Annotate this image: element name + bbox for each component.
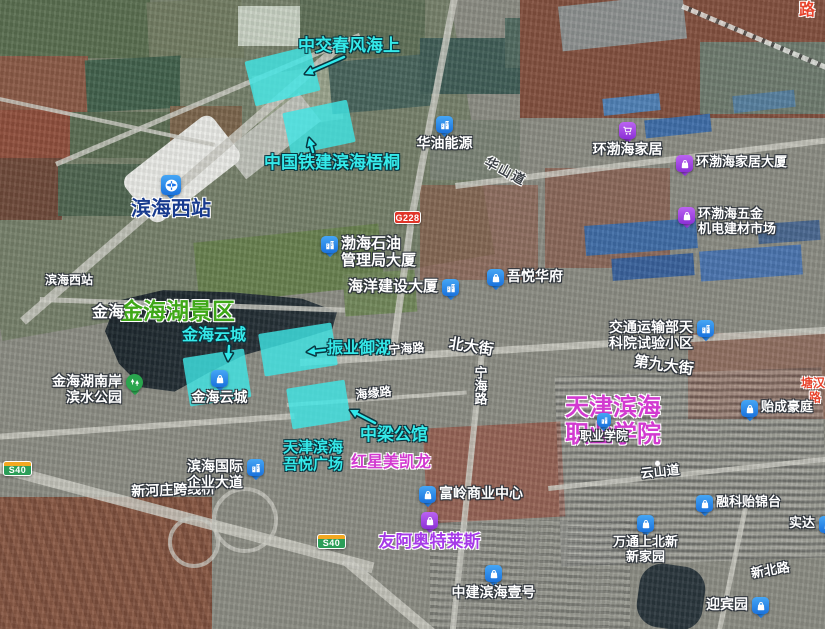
bag-icon[interactable] xyxy=(752,597,769,614)
poi-huanbohai-jiaju-label[interactable]: 环渤海家居 xyxy=(593,142,663,158)
label-line: 海洋建设大厦 xyxy=(348,279,438,296)
route-shield-shield-g228: G228 xyxy=(394,211,421,224)
label-line: 天津滨海 xyxy=(565,395,661,422)
road-label-bei-dajie: 北大街 xyxy=(447,336,494,360)
poi-huayou-nengyuan-label[interactable]: 华油能源 xyxy=(417,136,473,152)
satellite-map[interactable]: 华油能源渤海石油管理局大厦海洋建设大厦吾悦华府交通运输部天科院试验小区环渤海家居… xyxy=(0,0,825,629)
label-line: 环渤海五金 xyxy=(698,207,776,222)
label-line: 天津滨海 xyxy=(283,440,343,457)
route-shield-text: G228 xyxy=(395,213,419,223)
bag-icon[interactable] xyxy=(419,486,436,503)
label-line: 中建滨海壹号 xyxy=(452,585,536,601)
poi-yicheng-haoting-label[interactable]: 贻成豪庭 xyxy=(761,400,813,415)
building-icon[interactable] xyxy=(442,279,459,296)
road-label-binhaixi-zhan-small: 滨海西站 xyxy=(45,274,93,287)
poi-jinhai-yuncheng-poi-label[interactable]: 金海云城 xyxy=(192,390,248,406)
bag-icon[interactable] xyxy=(485,565,502,582)
area-label-wuyue-plaza: 天津滨海吾悦广场 xyxy=(283,440,343,474)
label-line: 交通运输部天 xyxy=(609,320,693,336)
area-label-jinhaihu-scenic-area: 金海湖景区 xyxy=(120,299,235,325)
label-line: 金海湖南岸 xyxy=(52,374,122,390)
label-line: 企业大道 xyxy=(187,475,243,491)
road-label-lu-top-right: 路 xyxy=(799,2,815,20)
label-line: 吾悦华府 xyxy=(507,269,563,285)
bag-icon[interactable] xyxy=(819,516,825,533)
railway-station-icon[interactable] xyxy=(161,175,181,195)
poi-huanbohai-jiaju-dasha-label[interactable]: 环渤海家居大厦 xyxy=(696,155,787,170)
road-label-huashan-dao: 华山道 xyxy=(482,155,529,189)
poi-tiankeyuan-shiyan-xiaoqu-label[interactable]: 交通运输部天科院试验小区 xyxy=(609,320,693,351)
label-line: 华油能源 xyxy=(417,136,473,152)
bag-icon[interactable] xyxy=(211,370,228,387)
label-line: 实达 xyxy=(789,516,815,531)
poi-fuling-shangye-zhongxin-label[interactable]: 富岭商业中心 xyxy=(439,486,523,502)
poi-huanbohai-wujin-shichang-label[interactable]: 环渤海五金机电建材市场 xyxy=(698,207,776,236)
annotation-ann-chunfeng: 中交春风海上 xyxy=(298,36,400,55)
poi-jinhaihu-nanan-park-label[interactable]: 金海湖南岸滨水公园 xyxy=(52,374,122,405)
route-shield-shield-s40-left: S40 xyxy=(3,461,32,476)
road-label-haiyuan-lu: 海缘路 xyxy=(355,385,392,402)
annotation-ann-yuncheng: 金海云城 xyxy=(182,327,246,345)
poi-rongke-yijintai-label[interactable]: 融科贻锦台 xyxy=(716,495,781,510)
bag-icon[interactable] xyxy=(741,400,758,417)
label-line: 职业学院 xyxy=(580,430,628,443)
map-labels: 华油能源渤海石油管理局大厦海洋建设大厦吾悦华府交通运输部天科院试验小区环渤海家居… xyxy=(0,0,825,629)
label-line: 贻成豪庭 xyxy=(761,400,813,415)
poi-wantong-shangbeixin-label[interactable]: 万通上北新新家园 xyxy=(613,535,678,564)
poi-youa-outlets-label[interactable]: 友阿奥特莱斯 xyxy=(379,532,481,551)
poi-shida-label[interactable]: 实达 xyxy=(789,516,815,531)
label-line: 迎宾园 xyxy=(706,597,748,613)
label-line: 科院试验小区 xyxy=(609,336,693,352)
poi-yingbin-yuan-label[interactable]: 迎宾园 xyxy=(706,597,748,613)
poi-binhaixi-railway-station-label[interactable]: 滨海西站 xyxy=(131,198,211,220)
road-label-xinbei-lu: 新北路 xyxy=(750,560,791,581)
label-line: 万通上北新 xyxy=(613,535,678,550)
poi-wuyue-huafu-label[interactable]: 吾悦华府 xyxy=(507,269,563,285)
label-line: 机电建材市场 xyxy=(698,222,776,237)
bag-icon[interactable] xyxy=(696,495,713,512)
park-icon[interactable] xyxy=(126,374,143,391)
label-line: 环渤海家居大厦 xyxy=(696,155,787,170)
route-shield-shield-s40-mid: S40 xyxy=(317,534,346,549)
label-line: 管理局大厦 xyxy=(341,253,416,270)
road-label-dijiu-dajie: 第九大街 xyxy=(633,354,695,379)
building-icon[interactable] xyxy=(436,116,453,133)
label-line: 友阿奥特莱斯 xyxy=(379,532,481,551)
bag-icon[interactable] xyxy=(421,512,438,529)
road-label-tanghan: 塘汉 xyxy=(801,377,825,390)
label-line: 新家园 xyxy=(613,550,678,565)
bag-icon[interactable] xyxy=(487,269,504,286)
poi-binhai-intl-qiye-dadao-label[interactable]: 滨海国际企业大道 xyxy=(187,459,243,490)
poi-bohai-shiyou-dasha-label[interactable]: 渤海石油管理局大厦 xyxy=(341,236,416,270)
road-label-ninghai-lu-h: 宁海路 xyxy=(388,341,425,357)
building-icon[interactable] xyxy=(321,236,338,253)
label-line: 滨海国际 xyxy=(187,459,243,475)
poi-zhongjian-binhai-yihao-label[interactable]: 中建滨海壹号 xyxy=(452,585,536,601)
building-icon[interactable] xyxy=(247,459,264,476)
annotation-ann-wutong: 中国铁建滨海梧桐 xyxy=(264,153,400,172)
label-line: 滨海西站 xyxy=(131,198,211,220)
dot-icon[interactable] xyxy=(654,460,661,467)
road-label-ninghai-lu-v: 宁海路 xyxy=(472,366,487,405)
route-shield-text: S40 xyxy=(323,538,341,548)
area-label-hongxing-meikailong: 红星美凯龙 xyxy=(351,454,431,472)
building-icon[interactable] xyxy=(597,413,611,427)
cart-icon[interactable] xyxy=(619,122,636,139)
area-label-jinhai: 金海 xyxy=(92,304,124,322)
label-line: 滨水公园 xyxy=(52,390,122,406)
bag-icon[interactable] xyxy=(676,155,693,172)
label-line: 富岭商业中心 xyxy=(439,486,523,502)
label-line: 渤海石油 xyxy=(341,236,416,253)
bag-icon[interactable] xyxy=(637,515,654,532)
building-icon[interactable] xyxy=(697,320,714,337)
label-line: 金海云城 xyxy=(192,390,248,406)
route-shield-text: S40 xyxy=(9,465,27,475)
label-line: 融科贻锦台 xyxy=(716,495,781,510)
poi-haiyang-jianshe-dasha-label[interactable]: 海洋建设大厦 xyxy=(348,279,438,296)
bag-icon[interactable] xyxy=(678,207,695,224)
annotation-ann-yuhu: 振业御湖 xyxy=(327,340,391,358)
poi-zhiye-xueyuan-label[interactable]: 职业学院 xyxy=(580,430,628,443)
label-line: 吾悦广场 xyxy=(283,457,343,474)
label-line: 环渤海家居 xyxy=(593,142,663,158)
annotation-ann-zhongliang: 中梁公馆 xyxy=(360,425,428,444)
